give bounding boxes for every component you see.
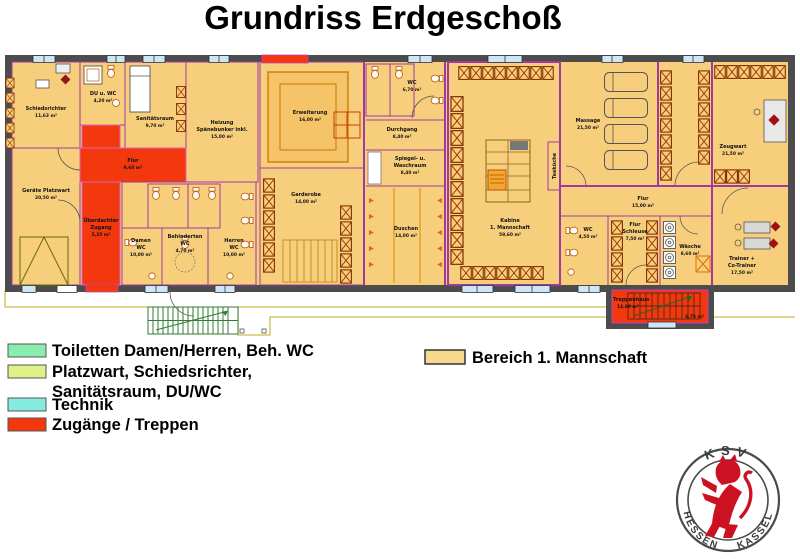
label-teekueche: Teeküche [552,152,558,179]
svg-text:4,20 m²: 4,20 m² [94,98,113,104]
label-zeugwart: Zeugwart [719,144,747,150]
svg-text:15,00 m²: 15,00 m² [632,203,654,209]
label-schiedsrichter: Schiedsrichter [26,106,67,112]
svg-text:59,60 m²: 59,60 m² [499,232,521,238]
label-geraete: Geräte Platzwart [22,188,70,194]
legend-swatch-toiletten [8,344,46,357]
svg-text:11,63 m²: 11,63 m² [35,113,57,119]
svg-text:17,50 m²: 17,50 m² [731,270,753,276]
svg-text:Zugang: Zugang [90,225,112,231]
legend-swatch-technik [8,398,46,411]
svg-text:4,50 m²: 4,50 m² [579,234,598,240]
label-flur-eingang: Flur [127,158,139,164]
svg-text:Co-Trainer: Co-Trainer [728,263,757,269]
floorplan-page: Grundriss Erdgeschoß [0,0,800,559]
svg-text:7,50 m²: 7,50 m² [626,236,645,242]
svg-text:8,40 m²: 8,40 m² [393,134,412,140]
top-entrance [262,55,308,63]
svg-text:WC: WC [229,245,239,251]
orange-box [696,256,710,272]
floorplan-drawing: Grundriss Erdgeschoß [0,0,800,559]
svg-text:10,00 m²: 10,00 m² [223,252,245,258]
label-wc-mitte: WC [407,80,417,86]
legend-swatch-mannschaft [425,350,465,364]
label-zugang: Überdachter [83,217,119,224]
svg-text:14,00 m²: 14,00 m² [617,304,639,310]
exterior-stairs [148,307,238,334]
label-herren-wc: Herren [224,238,244,244]
page-title: Grundriss Erdgeschoß [204,0,562,36]
legend-label-platzwart-1: Platzwart, Schiedsrichter, [52,363,252,381]
legend-swatch-platzwart [8,365,46,378]
kitchen-island [486,140,530,202]
svg-text:Waschraum: Waschraum [394,163,427,169]
label-waesche: Wäsche [679,244,701,250]
legend-item-toiletten: Toiletten Damen/Herren, Beh. WC [8,342,314,360]
svg-text:21,50 m²: 21,50 m² [577,125,599,131]
svg-text:5,25 m²: 5,25 m² [92,232,111,238]
svg-text:10,00 m²: 10,00 m² [130,252,152,258]
label-kabine: Kabine [500,218,520,224]
label-du-wc: DU u. WC [90,91,117,97]
bottom-entrance [86,284,118,292]
label-durchgang: Durchgang [387,127,418,133]
svg-text:4,70 m²: 4,70 m² [176,248,195,254]
svg-text:WC: WC [180,241,190,247]
legend-item-platzwart: Platzwart, Schiedsrichter, Sanitätsraum,… [8,363,252,401]
svg-text:Spänebunker inkl.: Spänebunker inkl. [196,127,247,133]
svg-text:1. Mannschaft: 1. Mannschaft [490,225,531,231]
label-schleuse: Flur [629,222,641,228]
svg-text:9,70 m²: 9,70 m² [146,123,165,129]
legend-label-technik: Technik [52,396,114,414]
legend-item-technik: Technik [8,396,114,414]
legend-left: Toiletten Damen/Herren, Beh. WC Platzwar… [8,342,314,434]
club-logo: KSV HESSEN KASSEL [677,443,779,552]
label-beh-wc: Behinderten [168,234,203,240]
label-damen-wc: Damen [131,238,151,244]
label-duschen: Duschen [394,226,419,232]
label-erweiterung: Erweiterung [293,110,328,116]
label-sanitaetsraum: Sanitätsraum [136,116,174,122]
legend-item-zugaenge: Zugänge / Treppen [8,416,199,434]
label-spiegel: Spiegel- u. [395,156,425,162]
svg-text:15,00 m²: 15,00 m² [211,134,233,140]
svg-text:6,75 m²: 6,75 m² [685,314,704,320]
label-treppenhaus: Treppenhaus [613,297,649,303]
svg-text:16,00 m²: 16,00 m² [299,117,321,123]
label-garderobe: Garderobe [291,192,321,198]
label-flur-rechts: Flur [637,196,649,202]
svg-text:14,00 m²: 14,00 m² [295,199,317,205]
label-heizung: Heizung [211,120,234,126]
legend-right: Bereich 1. Mannschaft [425,349,648,367]
svg-text:6,70 m²: 6,70 m² [403,87,422,93]
svg-text:8,40 m²: 8,40 m² [401,170,420,176]
svg-text:Schleuse: Schleuse [622,229,648,235]
svg-text:8,60 m²: 8,60 m² [681,251,700,257]
svg-text:21,50 m²: 21,50 m² [722,151,744,157]
legend-label-mannschaft: Bereich 1. Mannschaft [472,349,648,367]
label-wc-trainer: WC [583,227,593,233]
legend-swatch-zugaenge [8,418,46,431]
svg-text:14,00 m²: 14,00 m² [395,233,417,239]
label-massage: Massage [576,118,601,124]
legend-label-toiletten: Toiletten Damen/Herren, Beh. WC [52,342,314,360]
label-trainer: Trainer + [729,256,755,262]
svg-text:9,60 m²: 9,60 m² [124,165,143,171]
svg-text:20,50 m²: 20,50 m² [35,195,57,201]
legend-label-zugaenge: Zugänge / Treppen [52,416,199,434]
svg-text:WC: WC [136,245,146,251]
